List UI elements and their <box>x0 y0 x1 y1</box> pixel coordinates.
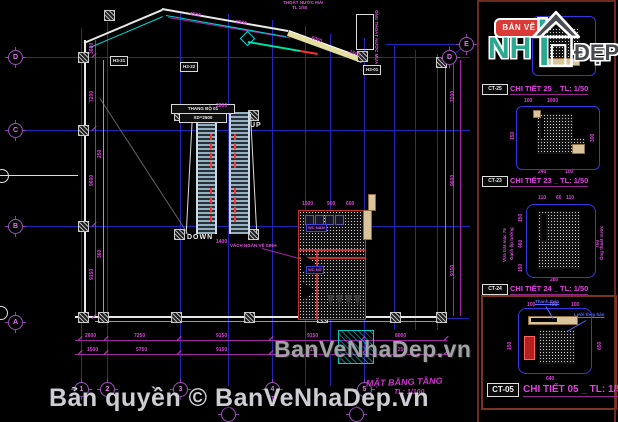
linework <box>539 330 575 364</box>
dimension-text: 460 <box>519 240 524 248</box>
dimension-text: 110 <box>566 196 574 201</box>
linework <box>174 229 185 240</box>
dimension-text: 9150 <box>451 265 456 276</box>
linework <box>368 194 376 211</box>
linework <box>95 40 96 318</box>
linework <box>234 134 236 168</box>
linework <box>22 57 470 58</box>
dimension-text: 60 <box>556 196 562 201</box>
detail-05-title: CHI TIẾT 05 _ TL: 1/50 <box>523 384 618 397</box>
ref-tag-2: H3-22 <box>180 62 198 72</box>
linework <box>301 281 315 301</box>
linework <box>540 37 547 66</box>
detail-25-title: CHI TIẾT 25 _ TL: 1/50 <box>510 84 588 95</box>
linework <box>262 248 299 259</box>
dimension-text: 7200 <box>90 91 95 102</box>
linework <box>234 188 236 222</box>
linework <box>532 10 580 70</box>
detail-25-tag: CT-25 <box>482 84 508 95</box>
dimension-text: 9150 <box>90 269 95 280</box>
dimension-text: 7250 <box>134 334 145 339</box>
linework <box>78 312 89 323</box>
linework <box>460 60 461 316</box>
dimension-text: 7200 <box>451 91 456 102</box>
linework <box>81 28 82 386</box>
linework <box>524 336 535 360</box>
dimension-text: 9150 <box>216 334 227 339</box>
dimension-text: 1400 <box>216 240 227 245</box>
annotation-note: VÁCH NGĂN VỆ SINH <box>230 244 277 249</box>
dimension-text: 280 <box>550 278 558 283</box>
annotation-note: TL 1/50 <box>292 6 307 11</box>
cad-drawing-screenshot: UP DOWN THANG BỘ 01 XD=2500 H3-21 H3-22 … <box>0 0 618 422</box>
linework <box>316 249 318 319</box>
detail-23-tag: CT-23 <box>482 176 508 187</box>
linework <box>335 215 344 225</box>
dimension-text: 240 <box>538 170 546 175</box>
ref-tag-1: H3-21 <box>110 56 128 66</box>
grid-bubble-C: C <box>8 123 23 138</box>
section-marker-icon <box>0 306 8 320</box>
linework <box>272 20 273 386</box>
linework <box>299 249 365 251</box>
linework <box>210 188 212 222</box>
linework <box>477 0 479 422</box>
linework <box>90 16 163 48</box>
annotation-note: Vữa trát mác 75 <box>503 228 508 262</box>
linework <box>327 295 334 306</box>
section-marker-icon <box>0 169 9 183</box>
dimension-text: 100 <box>524 99 532 104</box>
linework <box>437 54 438 330</box>
grid-bubble-A: A <box>8 315 23 330</box>
linework <box>477 0 616 2</box>
linework <box>186 114 193 234</box>
grid-bubble-D: D <box>8 50 23 65</box>
dimension-text: 2500 <box>235 20 247 27</box>
linework <box>363 210 372 240</box>
annotation-note: Gạch ốp tường <box>510 227 515 260</box>
linework <box>436 312 447 323</box>
linework <box>345 295 352 306</box>
linework <box>572 144 585 154</box>
stair-sub-tag: XD=2500 <box>179 113 227 123</box>
linework <box>78 221 89 232</box>
logo-nh-text: NH <box>488 34 531 64</box>
annotation-note: ỐNG THOÁT NƯỚC MƯA <box>374 10 379 64</box>
grid-bubble-D: D <box>442 50 457 65</box>
linework <box>107 22 108 386</box>
wc-room-label-2: WC NỮ <box>306 266 324 274</box>
ref-tag-3: H3-01 <box>363 65 381 75</box>
linework <box>84 9 163 44</box>
dimension-text: 150 <box>519 264 524 272</box>
linework <box>300 50 318 54</box>
linework <box>250 114 257 234</box>
linework <box>447 318 469 319</box>
dimension-text: 600 <box>346 202 354 207</box>
house-icon <box>532 10 580 70</box>
watermark-center: BanVeNhaDep.vn <box>274 336 471 363</box>
grid-bubble-B: B <box>8 219 23 234</box>
dimension-text: 9150 <box>216 348 227 353</box>
dimension-text: 100 <box>565 170 573 175</box>
detail-24-title: CHI TIẾT 24 _ TL: 1/50 <box>510 284 588 295</box>
dimension-text: 4500 <box>189 12 201 19</box>
detail-23-title: CHI TIẾT 23 _ TL: 1/50 <box>510 176 588 187</box>
linework <box>104 10 115 21</box>
linework <box>84 40 86 318</box>
linework <box>531 318 557 322</box>
linework <box>98 312 109 323</box>
linework <box>210 134 212 168</box>
linework <box>244 312 255 323</box>
detail-05-tag: CT-05 <box>487 383 519 397</box>
dimension-text: 110 <box>538 196 546 201</box>
linework <box>336 295 343 306</box>
linework <box>103 60 104 318</box>
section-line <box>0 175 78 176</box>
copyright-banner: Bản quyền © BanVeNhaDep.vn <box>0 384 478 413</box>
linework <box>542 214 546 240</box>
linework <box>415 50 416 330</box>
linework <box>299 257 365 259</box>
dimension-text: 1000 <box>547 99 558 104</box>
escalator-left <box>196 112 217 234</box>
dimension-text: 1500 <box>87 348 98 353</box>
annotation-note: Ống thoát nước <box>600 226 605 260</box>
dimension-text: 9600 <box>90 175 95 186</box>
linework <box>445 62 446 316</box>
grid-bubble-E: E <box>459 37 474 52</box>
up-label: UP <box>250 122 262 129</box>
dimension-text: 3600 <box>90 43 95 54</box>
dimension-text: 2600 <box>85 334 96 339</box>
linework <box>541 118 544 138</box>
dimension-text: 900 <box>327 202 335 207</box>
linework <box>78 125 89 136</box>
logo-dep-text: ĐẸP <box>574 40 618 66</box>
escalator-right <box>229 112 250 234</box>
linework <box>533 110 541 118</box>
wc-room-label-1: WC NAM <box>306 224 327 232</box>
linework <box>552 45 565 66</box>
linework <box>248 41 300 51</box>
dimension-text: 5750 <box>136 348 147 353</box>
dimension-text: 1500 <box>302 202 313 207</box>
dimension-text: 150 <box>519 214 524 222</box>
linework <box>354 295 361 306</box>
linework <box>390 312 401 323</box>
dimension-text: 250 <box>98 150 103 158</box>
down-label: DOWN <box>187 234 213 241</box>
dimension-text: 2800 <box>216 104 227 109</box>
linework <box>356 14 374 50</box>
column-diamond-icon <box>240 31 256 47</box>
linework <box>394 46 395 330</box>
linework <box>171 312 182 323</box>
dimension-text: 360 <box>98 250 103 258</box>
dimension-text: 9600 <box>451 175 456 186</box>
banvenhadep-logo: BẢN VẼ NH ĐẸP <box>482 6 616 78</box>
linework <box>386 44 462 45</box>
linework <box>78 52 89 63</box>
detail-24-tag: CT-24 <box>482 284 508 295</box>
